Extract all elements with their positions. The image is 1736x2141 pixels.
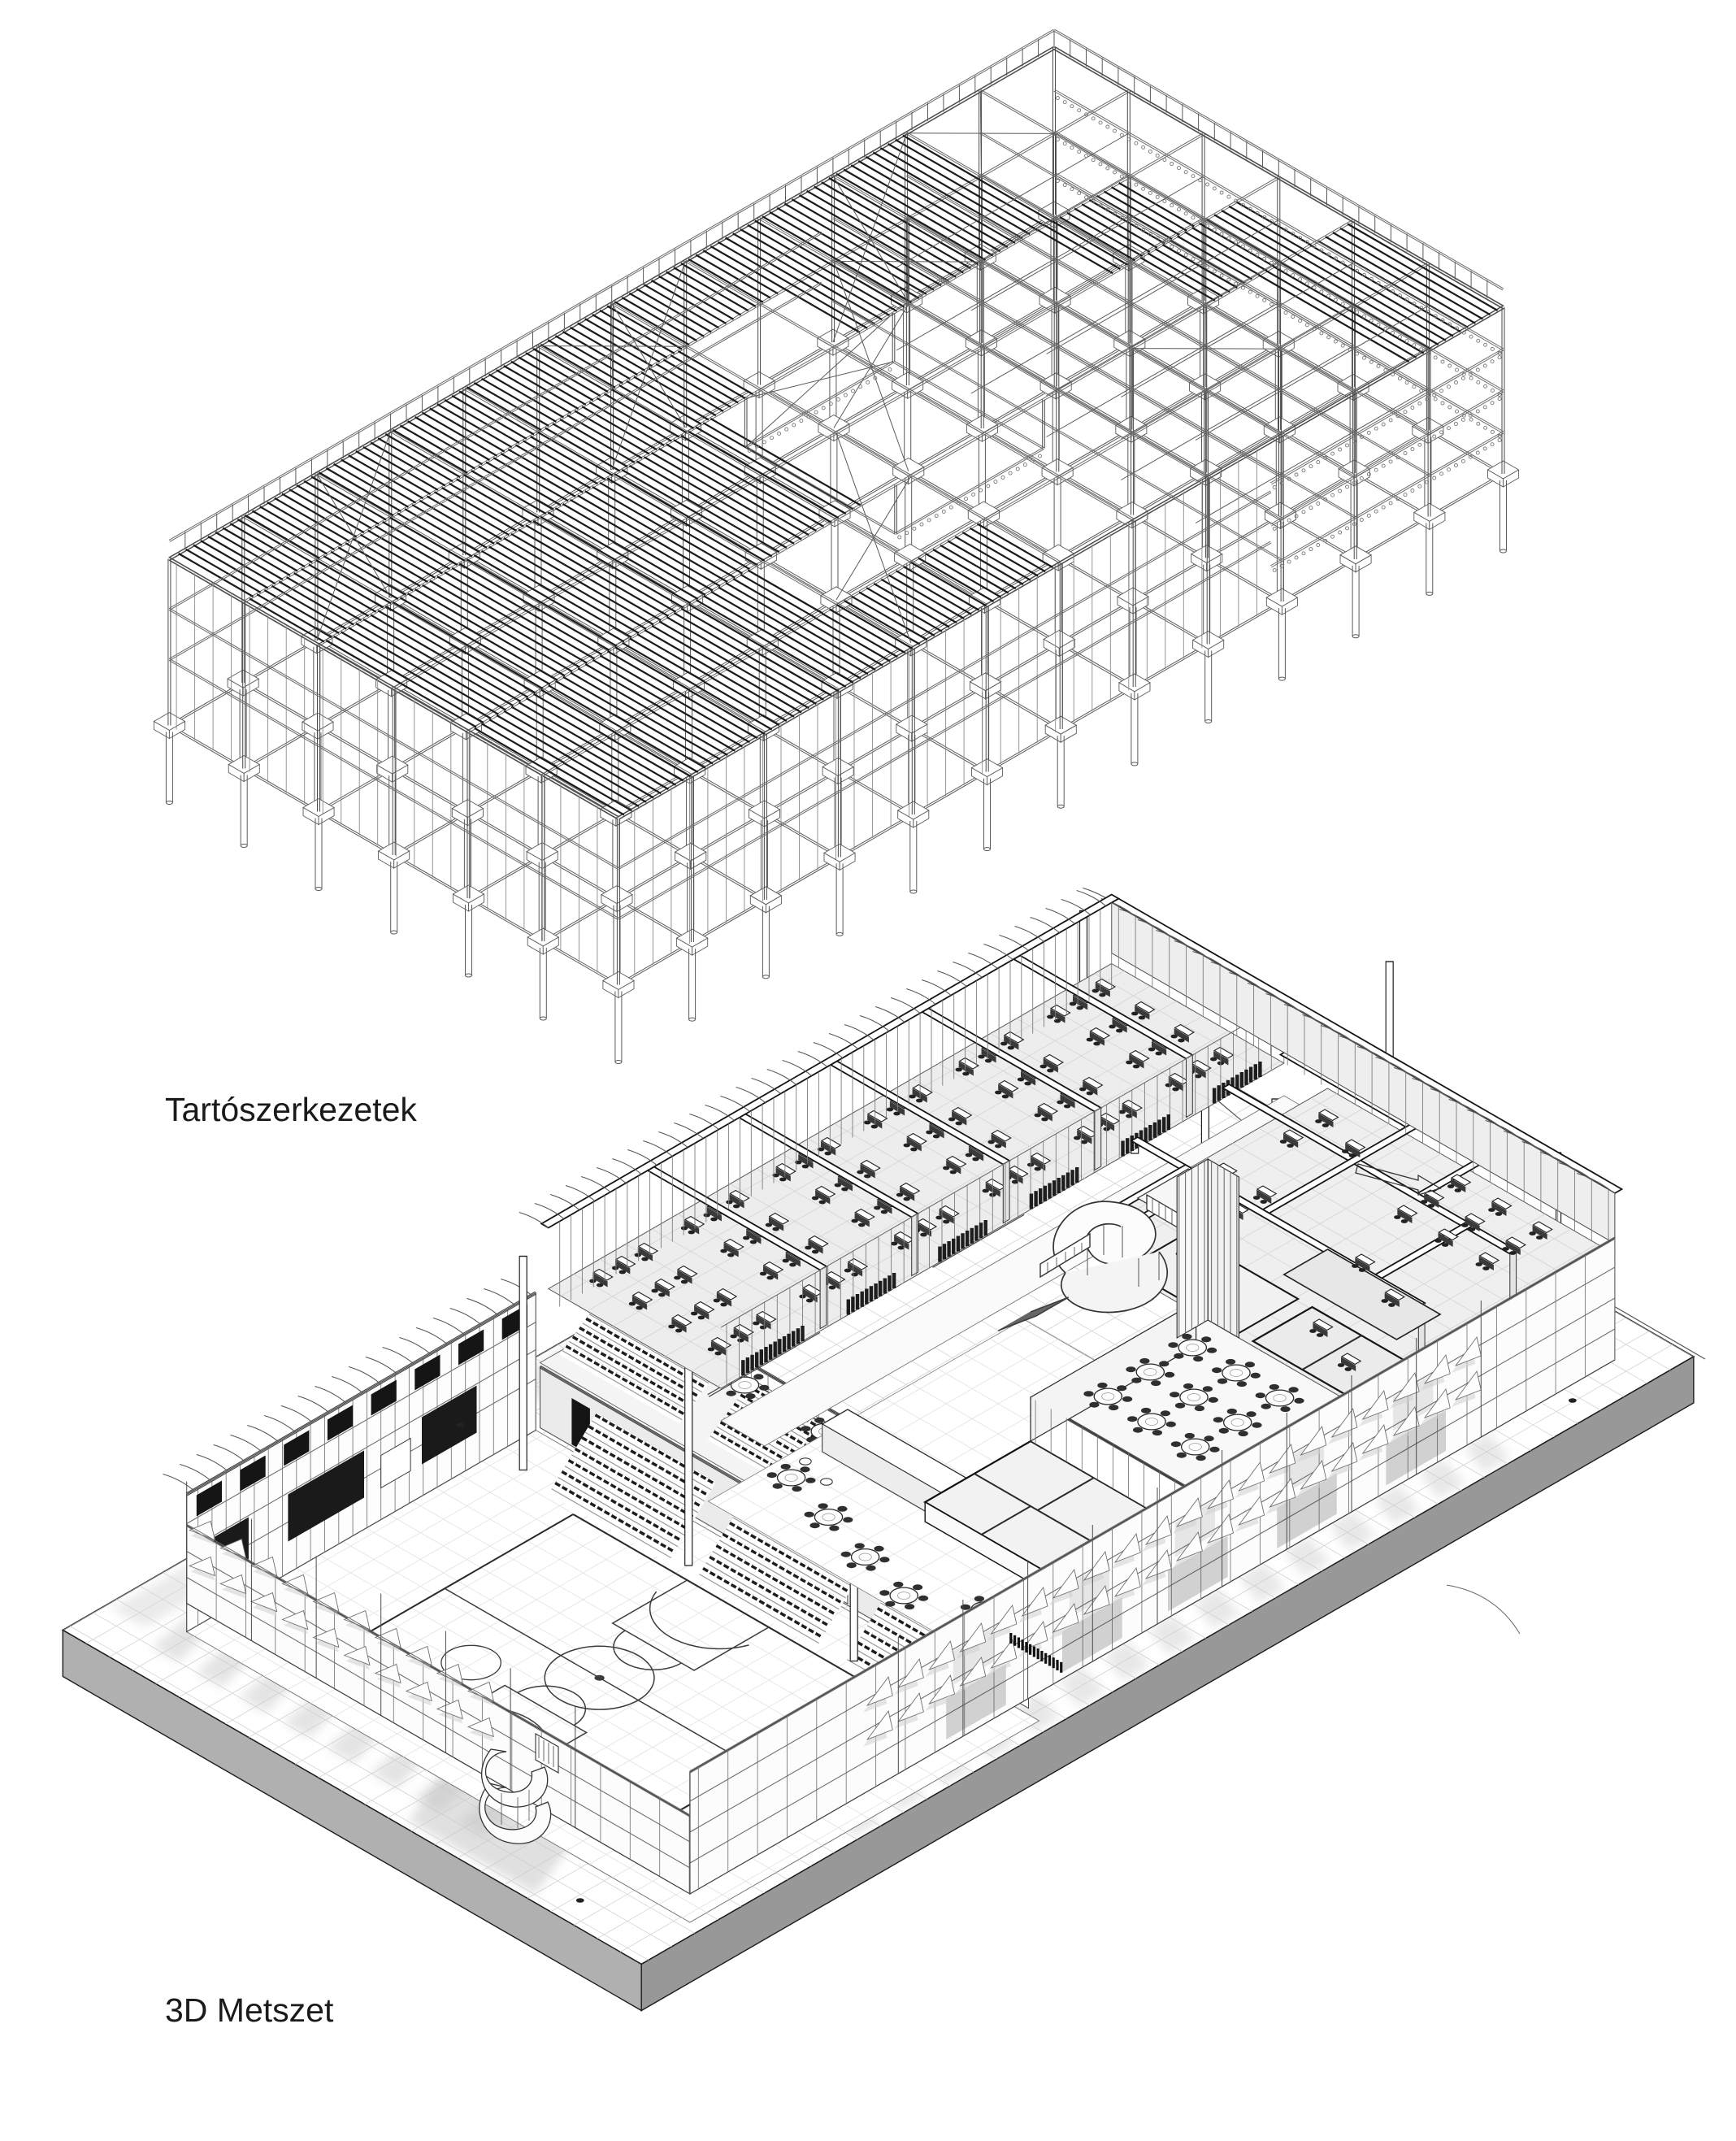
svg-text:3D Metszet: 3D Metszet (165, 1991, 334, 2029)
svg-text:Tartószerkezetek: Tartószerkezetek (165, 1091, 417, 1128)
